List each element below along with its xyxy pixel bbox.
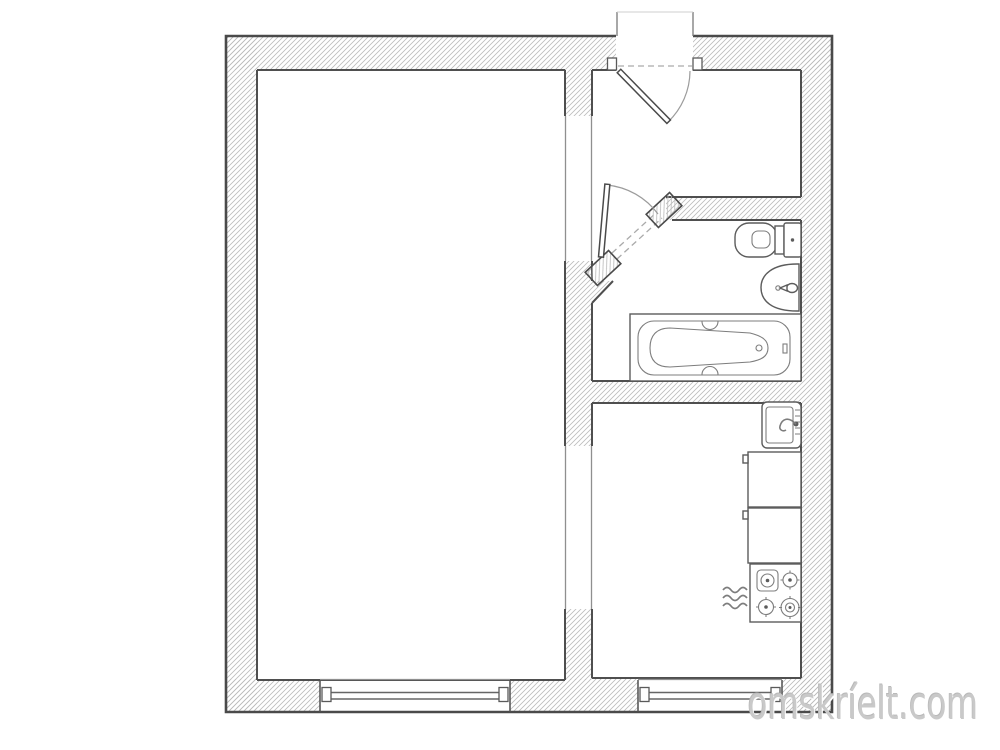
toilet-bowl bbox=[735, 223, 777, 257]
gas-wave bbox=[723, 596, 747, 601]
partition-stub-top bbox=[565, 70, 592, 116]
right-wall bbox=[801, 36, 832, 712]
toilet-connector bbox=[775, 226, 784, 254]
partition-stub-middle bbox=[565, 261, 592, 446]
washbasin-faucet bbox=[787, 284, 798, 293]
top-wall-left bbox=[226, 36, 616, 70]
kitchen-sink bbox=[762, 402, 801, 448]
window-stop bbox=[499, 688, 508, 702]
burner-center bbox=[788, 578, 792, 582]
gas-wave bbox=[723, 588, 747, 593]
floor-plan-drawing bbox=[0, 0, 1000, 750]
hallway-outline bbox=[592, 70, 801, 197]
watermark: omskríelt.com bbox=[748, 677, 978, 730]
door-leaf bbox=[599, 184, 610, 257]
window-stop bbox=[322, 688, 331, 702]
door-jamb-step bbox=[693, 58, 702, 70]
cabinet-handle bbox=[743, 511, 748, 519]
left-wall bbox=[226, 36, 257, 712]
gas-supply-symbol bbox=[723, 588, 747, 609]
living-room-window bbox=[322, 688, 508, 702]
hallway-bathroom-wall bbox=[666, 197, 801, 220]
bottom-wall-left bbox=[226, 679, 320, 712]
living-room-outline bbox=[257, 70, 565, 680]
washbasin bbox=[761, 264, 799, 311]
gas-wave bbox=[723, 604, 747, 609]
burner-center bbox=[789, 606, 792, 609]
toilet-flush-button bbox=[791, 238, 794, 241]
door-swing-arc bbox=[668, 71, 690, 122]
floor-plan-page: omskríelt.com bbox=[0, 0, 1000, 750]
counter-cabinet bbox=[748, 452, 801, 507]
counter-cabinet bbox=[748, 508, 801, 563]
partition-stub-bottom bbox=[565, 609, 592, 680]
entrance-door bbox=[608, 58, 703, 123]
entry-notch bbox=[617, 12, 693, 36]
cabinet-handle bbox=[743, 455, 748, 463]
window-glazing bbox=[331, 693, 499, 700]
gas-stove bbox=[750, 564, 801, 622]
bathroom-door bbox=[585, 184, 682, 285]
door-leaf bbox=[617, 69, 670, 123]
bathtub bbox=[630, 314, 801, 381]
bathtub-outer bbox=[630, 314, 801, 381]
window-stop bbox=[640, 688, 649, 702]
kitchen-cabinets bbox=[743, 452, 801, 563]
burner-center bbox=[764, 605, 768, 609]
door-jamb-step bbox=[608, 58, 617, 70]
burner-center bbox=[766, 579, 770, 583]
bottom-wall-middle bbox=[510, 679, 638, 712]
toilet bbox=[735, 223, 801, 257]
bathroom-kitchen-wall bbox=[592, 381, 801, 403]
